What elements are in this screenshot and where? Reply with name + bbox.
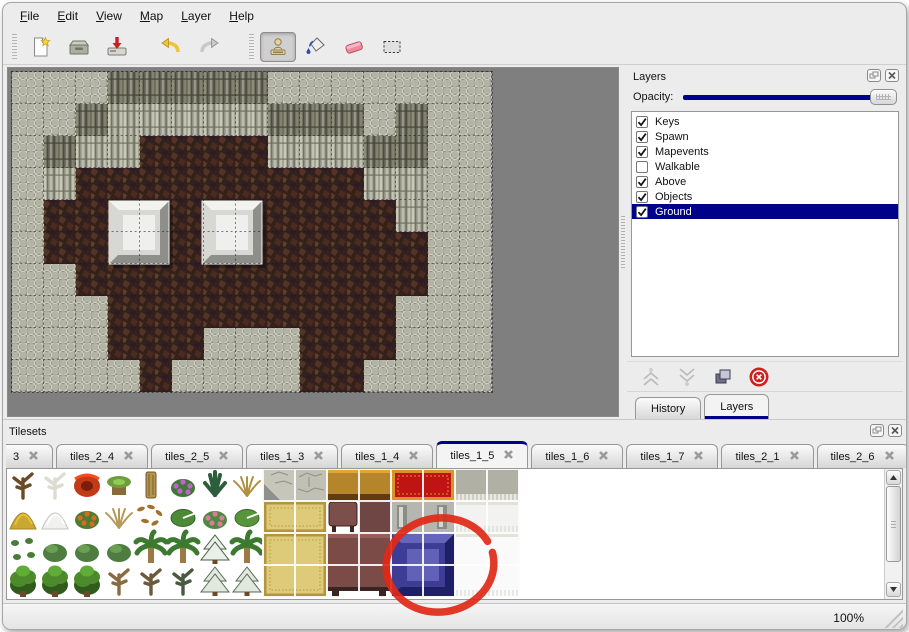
tileset-tile-trunk[interactable] <box>146 472 156 498</box>
tileset-scrollbar[interactable] <box>884 469 902 599</box>
layer-buttons <box>627 361 903 391</box>
layer-name: Keys <box>655 116 679 128</box>
tileset-tile-flat[interactable] <box>359 501 391 533</box>
layer-name: Ground <box>655 206 692 218</box>
layers-panel-title: Layers <box>633 71 666 83</box>
splitter-grip <box>621 216 625 268</box>
rect-select-tool-icon <box>380 35 404 59</box>
menu-bar: FileEditViewMapLayerHelp <box>3 3 906 29</box>
tileset-tile-flowerbush[interactable] <box>203 511 227 529</box>
tilesets-panel-title: Tilesets <box>9 426 47 438</box>
dock-tab-bar: HistoryLayers <box>627 391 903 419</box>
layer-checkbox[interactable] <box>636 191 648 203</box>
tileset-tile-flowerbush[interactable] <box>75 511 99 529</box>
tileset-tab-label: tiles_1_6 <box>545 451 589 463</box>
tab-close-icon[interactable] <box>789 450 800 464</box>
layer-name: Mapevents <box>655 146 709 158</box>
stamp-tool-button[interactable] <box>260 32 296 62</box>
main-area: Layers Opacity: KeysSpawnMapeventsWalkab… <box>3 65 906 419</box>
tab-close-icon[interactable] <box>503 449 514 463</box>
tab-close-icon[interactable] <box>313 450 324 464</box>
tileset-svg <box>7 469 847 600</box>
tileset-tab-tiles_1_5[interactable]: tiles_1_5 <box>436 441 528 468</box>
close-panel-icon[interactable] <box>885 69 899 85</box>
tileset-tab-label: tiles_2_1 <box>735 451 779 463</box>
tileset-tab-tiles_1_6[interactable]: tiles_1_6 <box>531 444 623 468</box>
paint-bucket-tool-icon <box>304 35 328 59</box>
menu-help[interactable]: Help <box>220 6 263 26</box>
tileset-tab-tiles_1_3[interactable]: tiles_1_3 <box>246 444 338 468</box>
layer-name: Objects <box>655 191 692 203</box>
redo-icon <box>197 35 221 59</box>
zoom-level: 100% <box>833 611 864 625</box>
tileset-tab-label: tiles_1_5 <box>450 450 494 462</box>
toolbar <box>3 29 906 65</box>
layer-up-button[interactable] <box>639 365 663 389</box>
save-icon <box>105 35 129 59</box>
tileset-tile-pad[interactable] <box>171 510 196 527</box>
tileset-tile-flowerbush[interactable] <box>171 479 195 497</box>
new-file-button[interactable] <box>23 32 59 62</box>
layer-row-keys[interactable]: Keys <box>632 114 898 129</box>
toolbar-drag-handle[interactable] <box>249 34 254 60</box>
app-window: FileEditViewMapLayerHelp <box>2 2 907 630</box>
opacity-slider[interactable] <box>681 89 897 105</box>
layer-name: Walkable <box>655 161 700 173</box>
layer-row-ground[interactable]: Ground <box>632 204 898 219</box>
tileset-tab-label: tiles_1_3 <box>260 451 304 463</box>
opacity-slider-track <box>683 95 895 100</box>
scroll-down-button[interactable] <box>886 582 901 597</box>
vertical-splitter[interactable] <box>619 65 627 419</box>
tileset-tab-bar: 3tiles_2_4tiles_2_5tiles_1_3tiles_1_4til… <box>3 440 906 468</box>
menu-layer[interactable]: Layer <box>172 6 220 26</box>
layers-dock: Layers Opacity: KeysSpawnMapeventsWalkab… <box>627 65 906 419</box>
tileset-tab-3[interactable]: 3 <box>6 444 53 468</box>
tileset-tab-label: tiles_1_7 <box>640 451 684 463</box>
close-panel-icon[interactable] <box>888 424 902 440</box>
float-panel-icon[interactable] <box>870 424 884 440</box>
layer-row-spawn[interactable]: Spawn <box>632 129 898 144</box>
open-icon <box>67 35 91 59</box>
tab-close-icon[interactable] <box>123 450 134 464</box>
status-bar: 100% <box>3 603 906 630</box>
tileset-tile-bush[interactable] <box>75 544 99 562</box>
layer-list: KeysSpawnMapeventsWalkableAboveObjectsGr… <box>631 111 899 357</box>
dock-tab-history[interactable]: History <box>635 397 701 419</box>
opacity-slider-thumb[interactable] <box>870 89 897 105</box>
scrollbar-thumb[interactable] <box>886 486 901 562</box>
layer-checkbox[interactable] <box>636 116 648 128</box>
tileset-tile-bush[interactable] <box>107 544 131 562</box>
tileset-tile-pad[interactable] <box>235 510 260 527</box>
opacity-row: Opacity: <box>627 85 903 109</box>
menu-file[interactable]: File <box>11 6 48 26</box>
rect-select-tool-button[interactable] <box>374 32 410 62</box>
toolbar-drag-handle[interactable] <box>12 34 17 60</box>
tileset-tab-label: tiles_2_4 <box>70 451 114 463</box>
undo-icon <box>159 35 183 59</box>
dock-tab-layers[interactable]: Layers <box>704 394 769 419</box>
layer-row-mapevents[interactable]: Mapevents <box>632 144 898 159</box>
layer-checkbox[interactable] <box>636 131 648 143</box>
tab-close-icon[interactable] <box>693 450 704 464</box>
redo-button[interactable] <box>191 32 227 62</box>
opacity-label: Opacity: <box>633 91 673 103</box>
tileset-tab-tiles_1_4[interactable]: tiles_1_4 <box>341 444 433 468</box>
tileset-tile-stonecorner[interactable] <box>263 469 295 501</box>
layers-panel-titlebar: Layers <box>627 65 903 85</box>
tileset-tab-label: tiles_1_4 <box>355 451 399 463</box>
save-button[interactable] <box>99 32 135 62</box>
tileset-tab-tiles_2_4[interactable]: tiles_2_4 <box>56 444 148 468</box>
tileset-tab-label: 3 <box>13 451 19 463</box>
layer-name: Above <box>655 176 686 188</box>
layer-checkbox[interactable] <box>636 206 648 218</box>
tab-close-icon[interactable] <box>884 450 895 464</box>
tileset-tab-label: tiles_2_5 <box>165 451 209 463</box>
tileset-tile-bigflower[interactable] <box>74 475 100 497</box>
undo-button[interactable] <box>153 32 189 62</box>
tileset-tab-tiles_2_6[interactable]: tiles_2_6 <box>817 444 908 468</box>
tileset-tab-tiles_2_1[interactable]: tiles_2_1 <box>721 444 813 468</box>
layer-row-objects[interactable]: Objects <box>632 189 898 204</box>
eraser-tool-button[interactable] <box>336 32 372 62</box>
scroll-up-button[interactable] <box>886 470 901 485</box>
eraser-tool-icon <box>342 35 366 59</box>
tileset-content[interactable] <box>6 468 903 600</box>
tab-close-icon[interactable] <box>598 450 609 464</box>
float-panel-icon[interactable] <box>867 69 881 85</box>
tab-close-icon[interactable] <box>408 450 419 464</box>
tileset-tab-tiles_2_5[interactable]: tiles_2_5 <box>151 444 243 468</box>
layer-down-button[interactable] <box>675 365 699 389</box>
layer-row-above[interactable]: Above <box>632 174 898 189</box>
tileset-tab-tiles_1_7[interactable]: tiles_1_7 <box>626 444 718 468</box>
tilesets-panel: Tilesets 3tiles_2_4tiles_2_5tiles_1_3til… <box>3 419 906 603</box>
layer-checkbox[interactable] <box>636 176 648 188</box>
open-button[interactable] <box>61 32 97 62</box>
menu-edit[interactable]: Edit <box>48 6 87 26</box>
layer-duplicate-button[interactable] <box>711 365 735 389</box>
map-canvas[interactable] <box>7 67 619 417</box>
tab-close-icon[interactable] <box>28 450 39 464</box>
tilesets-panel-titlebar: Tilesets <box>3 420 906 440</box>
layer-checkbox[interactable] <box>636 146 648 158</box>
layer-delete-button[interactable] <box>747 365 771 389</box>
layer-name: Spawn <box>655 131 689 143</box>
tileset-tab-label: tiles_2_6 <box>831 451 875 463</box>
tab-close-icon[interactable] <box>218 450 229 464</box>
stamp-tool-icon <box>266 35 290 59</box>
layer-checkbox[interactable] <box>636 161 648 173</box>
new-file-icon <box>29 35 53 59</box>
map-svg <box>11 71 493 393</box>
tileset-tile-stone[interactable] <box>295 469 327 501</box>
tileset-tile-bush[interactable] <box>43 544 67 562</box>
menu-view[interactable]: View <box>87 6 131 26</box>
menu-map[interactable]: Map <box>131 6 172 26</box>
resize-grip[interactable] <box>881 606 903 628</box>
layer-row-walkable[interactable]: Walkable <box>632 159 898 174</box>
paint-bucket-tool-button[interactable] <box>298 32 334 62</box>
